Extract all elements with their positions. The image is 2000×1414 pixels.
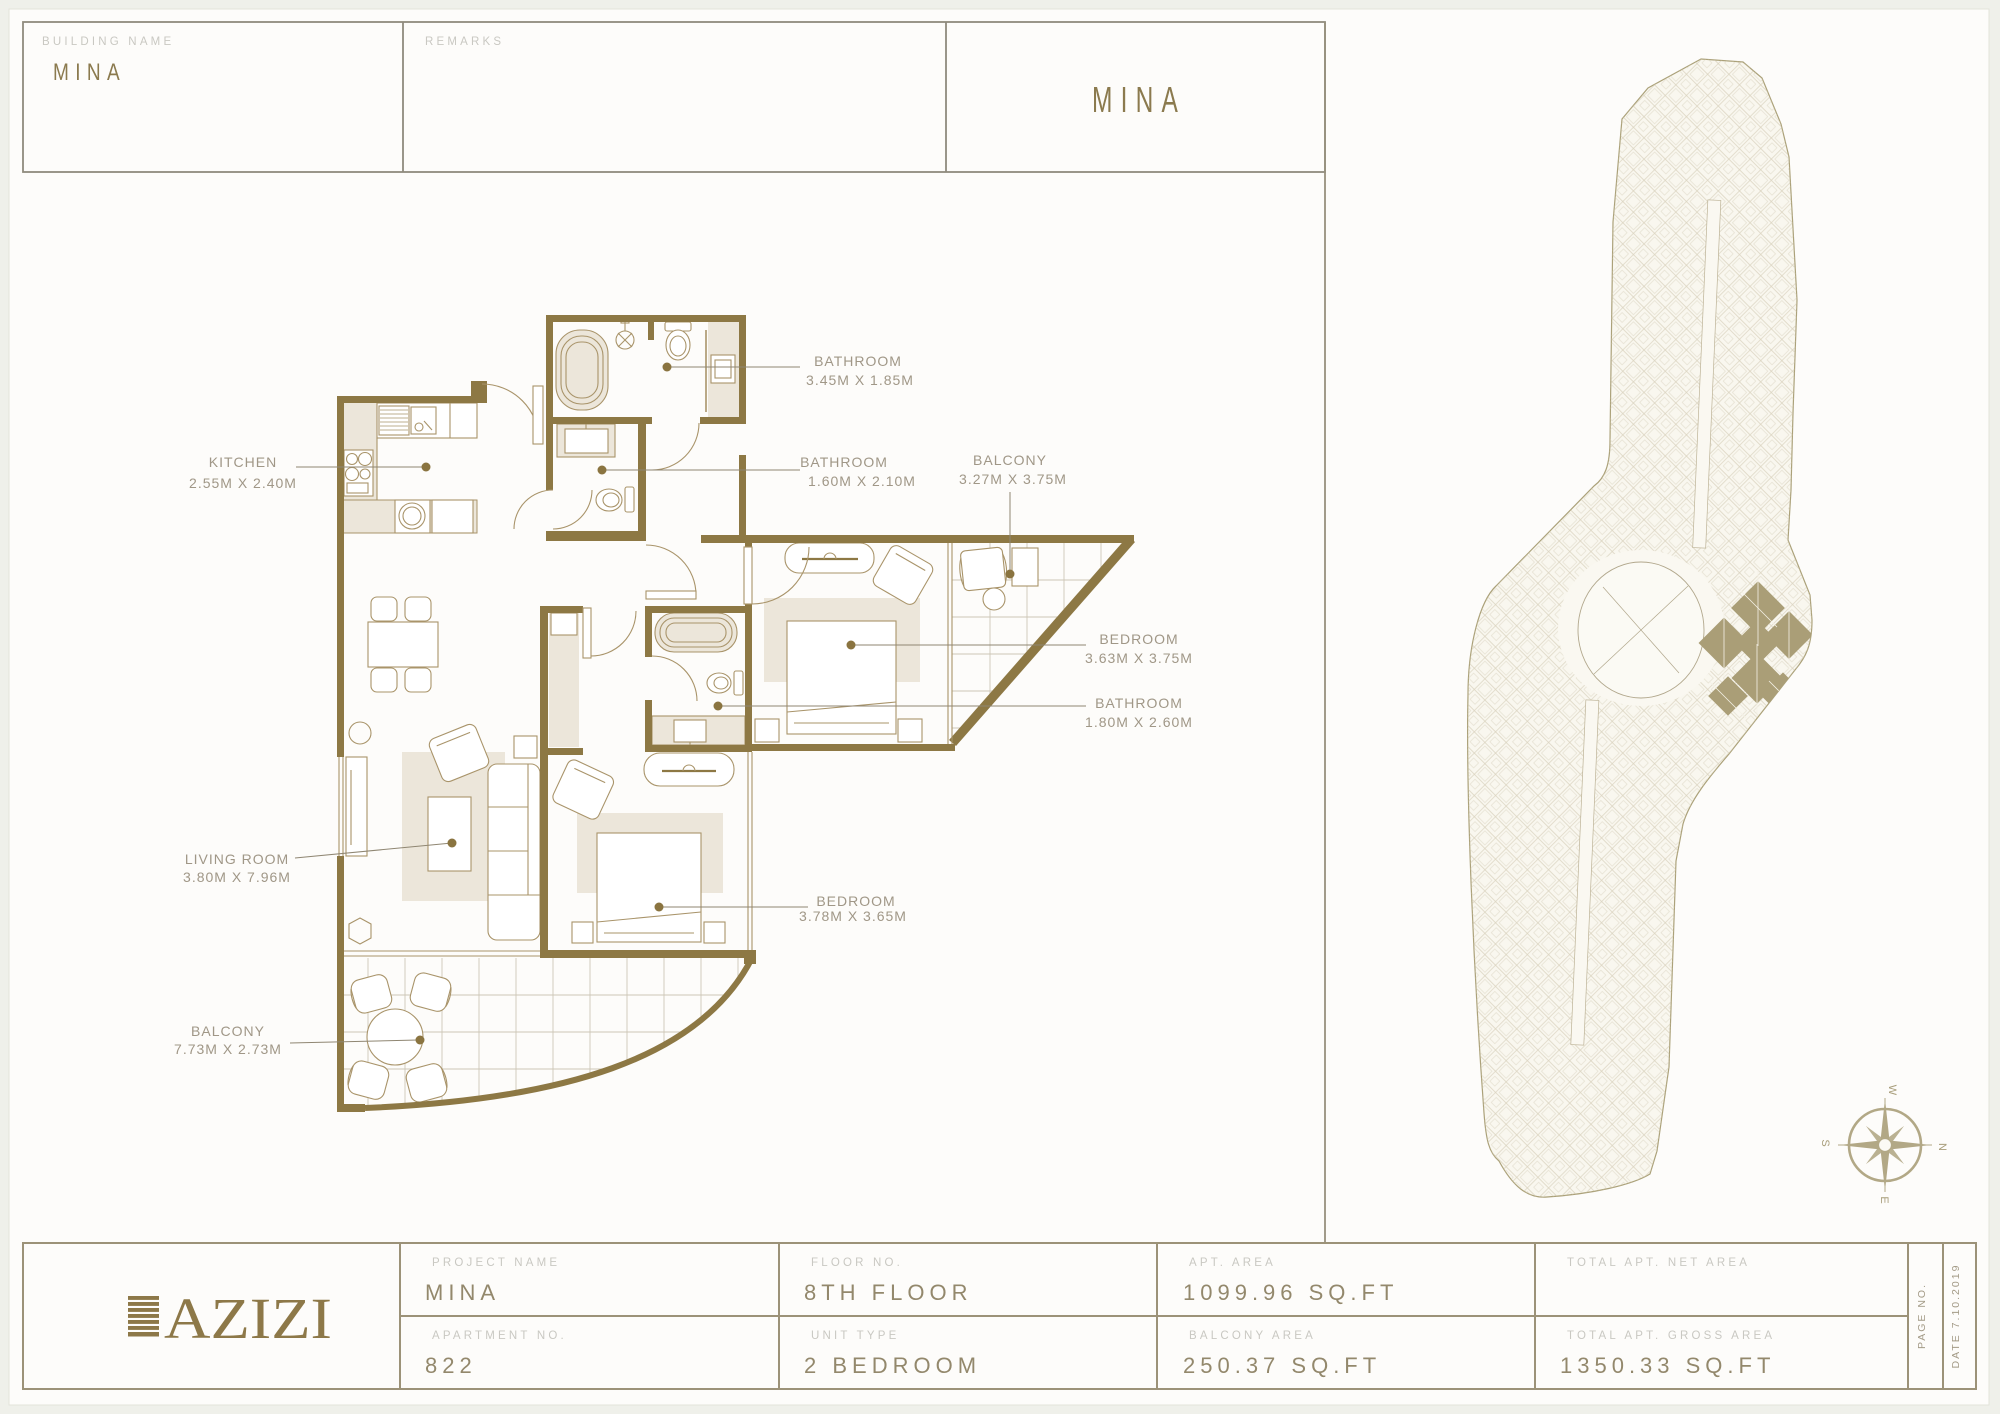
svg-text:DATE 7.10.2019: DATE 7.10.2019 xyxy=(1950,1264,1962,1369)
svg-text:1099.96 SQ.FT: 1099.96 SQ.FT xyxy=(1183,1280,1398,1305)
svg-text:BATHROOM: BATHROOM xyxy=(800,454,888,470)
svg-text:S: S xyxy=(1819,1139,1831,1146)
svg-text:3.78M X 3.65M: 3.78M X 3.65M xyxy=(799,908,907,924)
svg-text:1.80M X 2.60M: 1.80M X 2.60M xyxy=(1085,714,1193,730)
svg-text:BATHROOM: BATHROOM xyxy=(814,353,902,369)
svg-text:FLOOR NO.: FLOOR NO. xyxy=(811,1257,903,1269)
svg-text:LIVING ROOM: LIVING ROOM xyxy=(185,851,289,867)
svg-text:BALCONY AREA: BALCONY AREA xyxy=(1189,1330,1316,1342)
svg-text:BATHROOM: BATHROOM xyxy=(1095,695,1183,711)
svg-text:3.80M X 7.96M: 3.80M X 7.96M xyxy=(183,869,291,885)
svg-text:MINA: MINA xyxy=(425,1280,500,1305)
svg-text:250.37 SQ.FT: 250.37 SQ.FT xyxy=(1183,1353,1381,1378)
svg-text:APT. AREA: APT. AREA xyxy=(1189,1257,1276,1269)
svg-text:BUILDING NAME: BUILDING NAME xyxy=(42,36,174,48)
svg-text:TOTAL APT. GROSS AREA: TOTAL APT. GROSS AREA xyxy=(1567,1330,1775,1342)
svg-text:TOTAL APT. NET AREA: TOTAL APT. NET AREA xyxy=(1567,1257,1750,1269)
svg-text:W: W xyxy=(1886,1085,1898,1096)
svg-text:7.73M X 2.73M: 7.73M X 2.73M xyxy=(174,1041,282,1057)
svg-text:REMARKS: REMARKS xyxy=(425,36,504,48)
svg-text:E: E xyxy=(1878,1196,1890,1203)
svg-text:KITCHEN: KITCHEN xyxy=(209,454,277,470)
svg-text:UNIT TYPE: UNIT TYPE xyxy=(811,1330,899,1342)
svg-text:BEDROOM: BEDROOM xyxy=(1099,631,1178,647)
svg-text:PAGE NO.: PAGE NO. xyxy=(1916,1283,1928,1349)
svg-text:3.45M X 1.85M: 3.45M X 1.85M xyxy=(806,372,914,388)
svg-text:MINA: MINA xyxy=(53,59,126,86)
svg-text:BALCONY: BALCONY xyxy=(191,1023,265,1039)
svg-text:3.63M X 3.75M: 3.63M X 3.75M xyxy=(1085,650,1193,666)
svg-text:3.27M X 3.75M: 3.27M X 3.75M xyxy=(959,471,1067,487)
svg-text:MINA: MINA xyxy=(1092,79,1186,120)
svg-text:BEDROOM: BEDROOM xyxy=(816,893,895,909)
svg-text:2 BEDROOM: 2 BEDROOM xyxy=(804,1353,981,1378)
svg-text:N: N xyxy=(1936,1143,1948,1151)
svg-text:AZIZI: AZIZI xyxy=(164,1286,332,1351)
svg-text:PROJECT NAME: PROJECT NAME xyxy=(432,1257,560,1269)
svg-text:822: 822 xyxy=(425,1353,477,1378)
svg-text:2.55M X 2.40M: 2.55M X 2.40M xyxy=(189,475,297,491)
svg-text:1350.33 SQ.FT: 1350.33 SQ.FT xyxy=(1560,1353,1775,1378)
svg-text:APARTMENT NO.: APARTMENT NO. xyxy=(432,1330,567,1342)
svg-text:1.60M X 2.10M: 1.60M X 2.10M xyxy=(808,473,916,489)
svg-text:BALCONY: BALCONY xyxy=(973,452,1047,468)
svg-text:8TH FLOOR: 8TH FLOOR xyxy=(804,1280,972,1305)
